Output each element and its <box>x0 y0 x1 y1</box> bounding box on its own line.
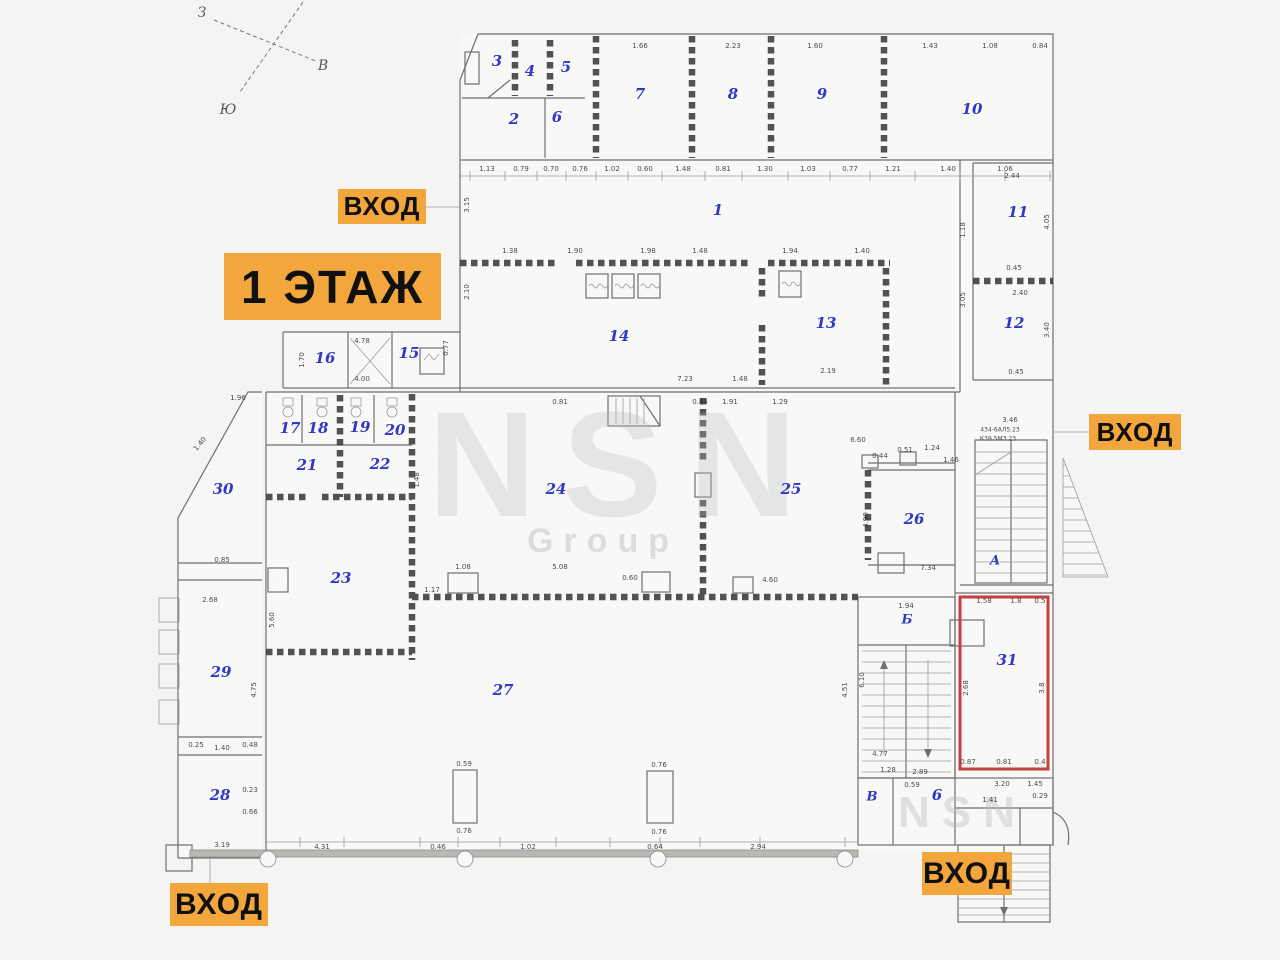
compass-rose <box>214 2 318 92</box>
floor-plan-page: NSN Group NSN 12345678910111213141516171… <box>0 0 1280 960</box>
entrance-label-top-left: ВХОД <box>338 189 426 224</box>
exterior-wall-thick <box>190 850 858 867</box>
entrance-label-bottom-right: ВХОД <box>922 852 1012 895</box>
watermark-subtitle: Group <box>527 522 679 561</box>
watermark-corner: NSN <box>898 788 1027 838</box>
entrance-label-bottom-left: ВХОД <box>170 883 268 926</box>
floor-title-label: 1 ЭТАЖ <box>224 253 441 320</box>
entrance-label-right: ВХОД <box>1089 414 1181 450</box>
